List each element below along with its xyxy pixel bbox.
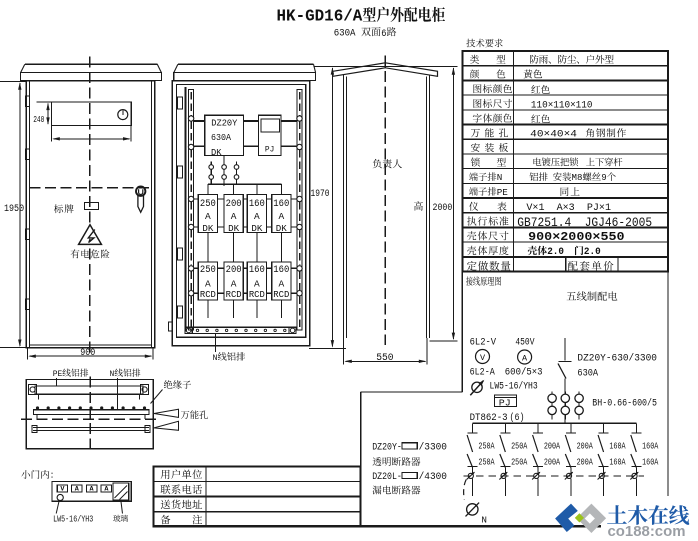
svg-text:DK: DK	[211, 147, 222, 158]
svg-text:A: A	[278, 211, 284, 222]
svg-text:N: N	[213, 353, 218, 363]
svg-text:160: 160	[273, 199, 289, 210]
svg-text:M8: M8	[572, 172, 583, 183]
svg-text:630A: 630A	[334, 28, 356, 40]
svg-text:200A: 200A	[577, 441, 593, 452]
svg-text:200: 200	[226, 199, 242, 210]
svg-text:250: 250	[200, 199, 216, 210]
svg-text:DZ20Y: DZ20Y	[211, 118, 237, 129]
svg-text:RCD: RCD	[273, 289, 289, 300]
svg-text:6L2-A: 6L2-A	[470, 366, 495, 377]
svg-text:160: 160	[249, 265, 265, 276]
svg-text:DZ20L-: DZ20L-	[372, 471, 402, 482]
svg-text:600/5×3: 600/5×3	[505, 366, 543, 377]
svg-text:DT862-3: DT862-3	[470, 412, 508, 423]
svg-text:LW5-16/YH3: LW5-16/YH3	[490, 381, 538, 392]
svg-text:160: 160	[249, 199, 265, 210]
svg-text:A: A	[254, 211, 260, 222]
svg-text:250A: 250A	[511, 457, 527, 468]
svg-text:160A: 160A	[642, 441, 658, 452]
svg-text:2.0: 2.0	[584, 247, 601, 258]
svg-text:LW5-16/YH3: LW5-16/YH3	[53, 515, 93, 525]
svg-text:DZ20Y-: DZ20Y-	[372, 442, 402, 453]
svg-text:160: 160	[273, 265, 289, 276]
svg-text:6L2-V: 6L2-V	[470, 337, 497, 348]
svg-text:160A: 160A	[609, 457, 625, 468]
svg-text:160A: 160A	[642, 457, 658, 468]
svg-text:250A: 250A	[478, 441, 494, 452]
svg-text:(6): (6)	[510, 412, 525, 424]
svg-text:A: A	[205, 211, 211, 222]
svg-text:1970: 1970	[311, 188, 330, 199]
svg-text:V×1 A×3 PJ×1: V×1 A×3 PJ×1	[526, 202, 611, 214]
svg-text:160A: 160A	[609, 441, 625, 452]
svg-text:2.0: 2.0	[547, 247, 564, 258]
svg-text:RCD: RCD	[249, 289, 265, 300]
svg-text:200A: 200A	[544, 457, 560, 468]
svg-text:900×2000×550: 900×2000×550	[528, 231, 625, 244]
svg-text:RCD: RCD	[226, 289, 242, 300]
svg-text:2000: 2000	[433, 203, 453, 214]
svg-text:550: 550	[376, 353, 393, 364]
svg-text:PJ: PJ	[265, 144, 274, 154]
svg-text:/3300: /3300	[419, 442, 448, 453]
svg-text:200A: 200A	[544, 441, 560, 452]
svg-text:250A: 250A	[511, 441, 527, 452]
svg-text:450V: 450V	[515, 337, 534, 348]
svg-text:N: N	[110, 370, 115, 379]
svg-text:N: N	[497, 172, 503, 183]
svg-text:240: 240	[33, 114, 44, 125]
svg-text:250A: 250A	[478, 457, 494, 468]
svg-text:PE: PE	[53, 370, 63, 379]
svg-text:200: 200	[226, 265, 242, 276]
svg-text:PE: PE	[497, 187, 509, 198]
svg-text:HK-GD16/A: HK-GD16/A	[277, 7, 363, 26]
svg-text:250: 250	[200, 265, 216, 276]
svg-text:co188:com: co188:com	[608, 524, 686, 540]
svg-text:GB7251.4 JGJ46-2005: GB7251.4 JGJ46-2005	[517, 215, 652, 230]
svg-text:1950: 1950	[4, 203, 24, 214]
svg-text:630A: 630A	[211, 132, 231, 143]
svg-text:DZ20Y-630/3300: DZ20Y-630/3300	[577, 352, 657, 363]
svg-text:900: 900	[80, 348, 95, 359]
svg-text:200A: 200A	[577, 457, 593, 468]
svg-text:PJ: PJ	[499, 398, 511, 408]
svg-text:630A: 630A	[577, 367, 598, 378]
svg-text:110×110×110: 110×110×110	[531, 99, 593, 111]
svg-text:BH-0.66-600/5: BH-0.66-600/5	[592, 397, 657, 408]
svg-text:/4300: /4300	[419, 471, 448, 482]
svg-text:A: A	[231, 211, 237, 222]
svg-text:9: 9	[601, 172, 606, 183]
svg-text:40×40×4: 40×40×4	[530, 129, 577, 141]
svg-text:N: N	[481, 514, 487, 525]
svg-text:RCD: RCD	[200, 289, 216, 300]
svg-text:V: V	[480, 353, 486, 363]
svg-text:6: 6	[381, 29, 386, 40]
svg-text:A: A	[522, 354, 528, 364]
